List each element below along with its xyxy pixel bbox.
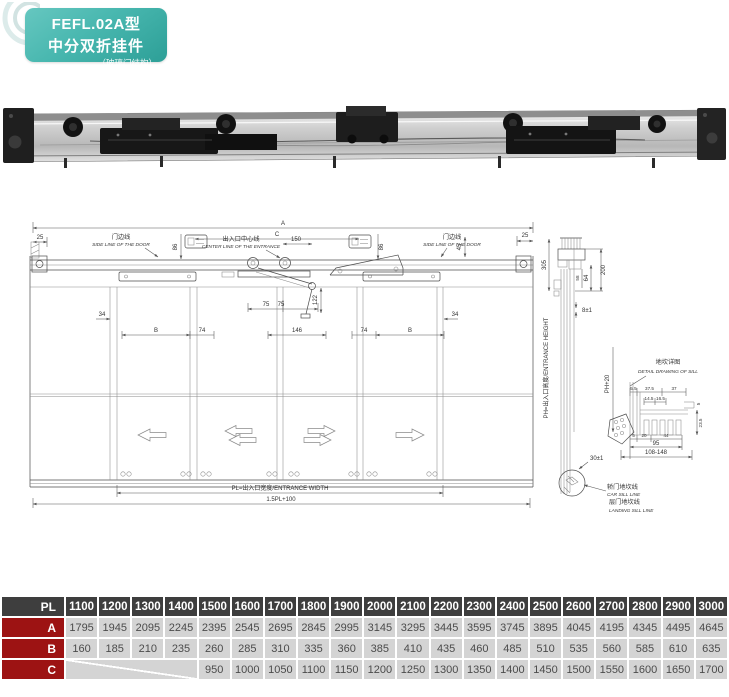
table-cell: 2995	[331, 618, 362, 637]
hanger-plate-right	[363, 272, 440, 281]
table-cell: 260	[199, 639, 230, 658]
table-col-header: 2100	[397, 597, 428, 616]
table-cell: 385	[364, 639, 395, 658]
table-col-header: 2800	[629, 597, 660, 616]
table-cell: 285	[232, 639, 263, 658]
sill-title-en: DETAIL DRAWING OF SILL	[638, 369, 698, 375]
model-badge: FEFL.02A型 中分双折挂件 （玻璃门结构）	[25, 8, 167, 62]
dim-200: 200	[601, 264, 607, 275]
table-col-header: 2900	[663, 597, 694, 616]
table-cell: 3445	[431, 618, 462, 637]
table-cell: 585	[629, 639, 660, 658]
hanger-plate-left	[119, 272, 196, 281]
table-cell: 3745	[497, 618, 528, 637]
right-end-cap	[697, 108, 726, 160]
table-col-header: 2200	[431, 597, 462, 616]
table-cell: 1700	[696, 660, 727, 679]
dim-64: 64	[584, 274, 590, 281]
dim-34-right: 34	[452, 312, 459, 318]
table-row-A: A179519452095224523952545269528452995314…	[2, 618, 727, 637]
dim-a: A	[281, 221, 285, 227]
spec-table: PL11001200130014001500160017001800190020…	[0, 595, 729, 681]
table-cell: 2695	[265, 618, 296, 637]
table-row-label: C	[2, 660, 64, 679]
door-line-right-en: SIDE LINE OF THE DOOR	[423, 242, 481, 248]
table-cell: 2095	[132, 618, 163, 637]
table-cell: 1945	[99, 618, 130, 637]
table-cell: 1100	[298, 660, 329, 679]
sill-dim-5-right: 5	[696, 402, 701, 405]
dim-150: 150	[291, 237, 302, 243]
table-cell: 4645	[696, 618, 727, 637]
dim-b-left: B	[154, 328, 158, 334]
table-cell: 310	[265, 639, 296, 658]
table-cell: 3595	[464, 618, 495, 637]
table-cell: 185	[99, 639, 130, 658]
model-name: 中分双折挂件	[25, 35, 167, 56]
table-cell: 2395	[199, 618, 230, 637]
table-cell: 360	[331, 639, 362, 658]
sill-dim-20: 20	[641, 433, 647, 438]
dim-86-right: 86	[379, 243, 385, 250]
sill-dim-37-5: 37.5	[645, 386, 654, 391]
table-cell: 2245	[165, 618, 196, 637]
table-cell: 1000	[232, 660, 263, 679]
sill-dim-95: 95	[653, 441, 660, 447]
catalog-page: FEFL.02A型 中分双折挂件 （玻璃门结构）	[0, 0, 729, 697]
table-col-header: 1100	[66, 597, 97, 616]
center-line-en: CENTER LINE OF THE ENTRANCE	[202, 244, 281, 250]
table-cell: 4195	[596, 618, 627, 637]
side-section-view: 305 200 64 58 8±1 PH+20 30±1 轿门地坎线 C	[542, 238, 654, 514]
table-cell: 1350	[464, 660, 495, 679]
dim-8: 8±1	[582, 308, 593, 314]
table-col-header: 1700	[265, 597, 296, 616]
table-cell: 535	[563, 639, 594, 658]
table-cell: 950	[199, 660, 230, 679]
table-cell: 335	[298, 639, 329, 658]
table-cell: 235	[165, 639, 196, 658]
table-cell: 4495	[663, 618, 694, 637]
table-cell: 160	[66, 639, 97, 658]
door-line-left-cn: 门边线	[112, 233, 131, 241]
sill-dim-5: 5	[632, 433, 635, 438]
left-end-cap	[3, 108, 34, 163]
table-header-row: PL11001200130014001500160017001800190020…	[2, 597, 727, 616]
table-cell: 1450	[530, 660, 561, 679]
dim-b-right: B	[408, 328, 412, 334]
table-col-header: 2400	[497, 597, 528, 616]
table-cell: 460	[464, 639, 495, 658]
table-cell: 1250	[397, 660, 428, 679]
table-cell: 410	[397, 639, 428, 658]
fixing-bracket-right-icon	[349, 235, 371, 248]
bottom-guides	[121, 472, 437, 476]
table-col-header: 2700	[596, 597, 627, 616]
dim-86-left: 86	[173, 243, 179, 250]
table-body: A179519452095224523952545269528452995314…	[2, 618, 727, 679]
table-cell-empty	[66, 660, 197, 679]
table-cell: 210	[132, 639, 163, 658]
dim-1-5pl: 1.5PL+100	[266, 497, 296, 503]
table-row-B: B160185210235260285310335360385410435460…	[2, 639, 727, 658]
center-folding-mechanism	[222, 255, 403, 318]
door-line-left-en: SIDE LINE OF THE DOOR	[92, 242, 150, 248]
front-view: A C 25 25 门边线 SIDE LINE OF THE DOOR 门边线 …	[30, 221, 550, 508]
door-panels	[110, 287, 443, 480]
table-cell: 2545	[232, 618, 263, 637]
sill-title-cn: 地坎详图	[656, 358, 681, 366]
dim-25-left: 25	[37, 235, 44, 241]
table-col-header: 1200	[99, 597, 130, 616]
technical-drawing: A C 25 25 门边线 SIDE LINE OF THE DOOR 门边线 …	[0, 192, 729, 542]
dim-30: 30±1	[590, 456, 604, 462]
table-cell: 1795	[66, 618, 97, 637]
dim-58: 58	[575, 275, 580, 281]
sill-dim-5-5: 5.5	[630, 386, 637, 391]
table-cell: 1650	[663, 660, 694, 679]
table-cell: 3295	[397, 618, 428, 637]
landing-sill-line-en: LANDING SILL LINE	[609, 508, 654, 514]
table-col-header: 1800	[298, 597, 329, 616]
sill-dim-44: 44	[663, 433, 669, 438]
table-cell: 3145	[364, 618, 395, 637]
center-line-cn: 出入口中心线	[222, 235, 259, 243]
table-cell: 435	[431, 639, 462, 658]
car-sill-line-cn: 轿门地坎线	[607, 483, 638, 491]
table-cell: 1600	[629, 660, 660, 679]
sill-dim-23-5: 23.5	[698, 418, 703, 427]
table-cell: 610	[663, 639, 694, 658]
table-cell: 2845	[298, 618, 329, 637]
dim-45: 45	[457, 243, 463, 250]
table-col-header: 1600	[232, 597, 263, 616]
dim-34-left: 34	[99, 312, 106, 318]
model-number: FEFL.02A型	[25, 13, 167, 34]
table-cell: 4045	[563, 618, 594, 637]
sill-dim-37: 37	[671, 386, 677, 391]
table-col-header: 2500	[530, 597, 561, 616]
table-cell: 3895	[530, 618, 561, 637]
model-subtitle: （玻璃门结构）	[25, 57, 167, 69]
table-cell: 1550	[596, 660, 627, 679]
dim-305: 305	[542, 259, 548, 270]
table-cell: 1500	[563, 660, 594, 679]
door-line-right-cn: 门边线	[443, 233, 462, 241]
table-cell: 485	[497, 639, 528, 658]
dim-75-a: 75	[263, 302, 270, 308]
table-col-header: 2000	[364, 597, 395, 616]
sill-detail-view: 地坎详图 DETAIL DRAWING OF SILL 5.5 37.5 37 …	[608, 358, 703, 460]
table-cell: 560	[596, 639, 627, 658]
table-cell: 4345	[629, 618, 660, 637]
table-col-header: 1900	[331, 597, 362, 616]
sill-dim-108-148: 108-148	[645, 450, 668, 456]
dim-25-right: 25	[522, 233, 529, 239]
table-col-header: 3000	[696, 597, 727, 616]
dim-75-b: 75	[278, 302, 285, 308]
table-cell: 1300	[431, 660, 462, 679]
table-cell: 1200	[364, 660, 395, 679]
table-col-header: 2300	[464, 597, 495, 616]
dim-146: 146	[292, 328, 303, 334]
dim-pl: PL=出入口宽度/ENTRANCE WIDTH	[232, 484, 329, 492]
table-cell: 510	[530, 639, 561, 658]
sill-dim-16-5: 16.5	[656, 396, 665, 401]
product-photo	[0, 100, 729, 180]
opening-direction-arrows	[138, 426, 424, 446]
dim-74-left: 74	[199, 328, 206, 334]
table-row-C: C950100010501100115012001250130013501400…	[2, 660, 727, 679]
sill-detail-circle	[559, 470, 585, 496]
sill-dim-14-5: 14.5	[645, 396, 654, 401]
dim-74-right: 74	[361, 328, 368, 334]
table-cell: 1150	[331, 660, 362, 679]
table-cell: 1400	[497, 660, 528, 679]
dim-c: C	[275, 232, 280, 238]
table-col-header: 1400	[165, 597, 196, 616]
table-col-header: 1300	[132, 597, 163, 616]
table-header-label: PL	[2, 597, 64, 616]
table-row-label: B	[2, 639, 64, 658]
dim-122: 122	[313, 294, 319, 305]
car-sill-line-en: CAR SILL LINE	[607, 492, 641, 498]
table-cell: 635	[696, 639, 727, 658]
table-cell: 1050	[265, 660, 296, 679]
table-col-header: 1500	[199, 597, 230, 616]
table-col-header: 2600	[563, 597, 594, 616]
landing-sill-line-cn: 层门地坎线	[609, 498, 640, 506]
dim-ph: PH=出入口高度/ENTRANCE HEIGHT	[542, 317, 550, 418]
dim-ph20: PH+20	[605, 374, 611, 393]
table-row-label: A	[2, 618, 64, 637]
